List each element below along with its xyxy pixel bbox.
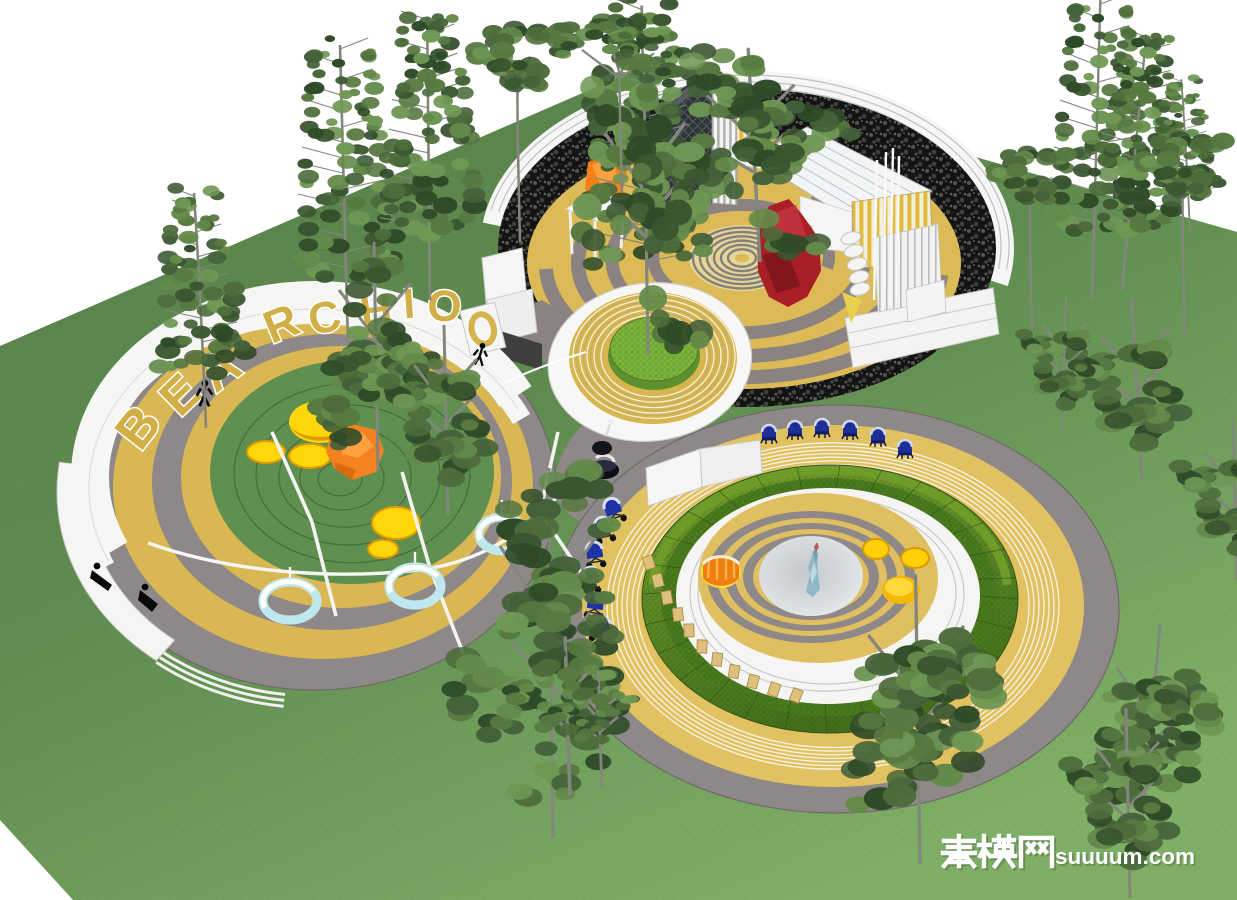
svg-text:suuuum.com: suuuum.com [1055,844,1195,869]
svg-text:O: O [427,281,463,331]
